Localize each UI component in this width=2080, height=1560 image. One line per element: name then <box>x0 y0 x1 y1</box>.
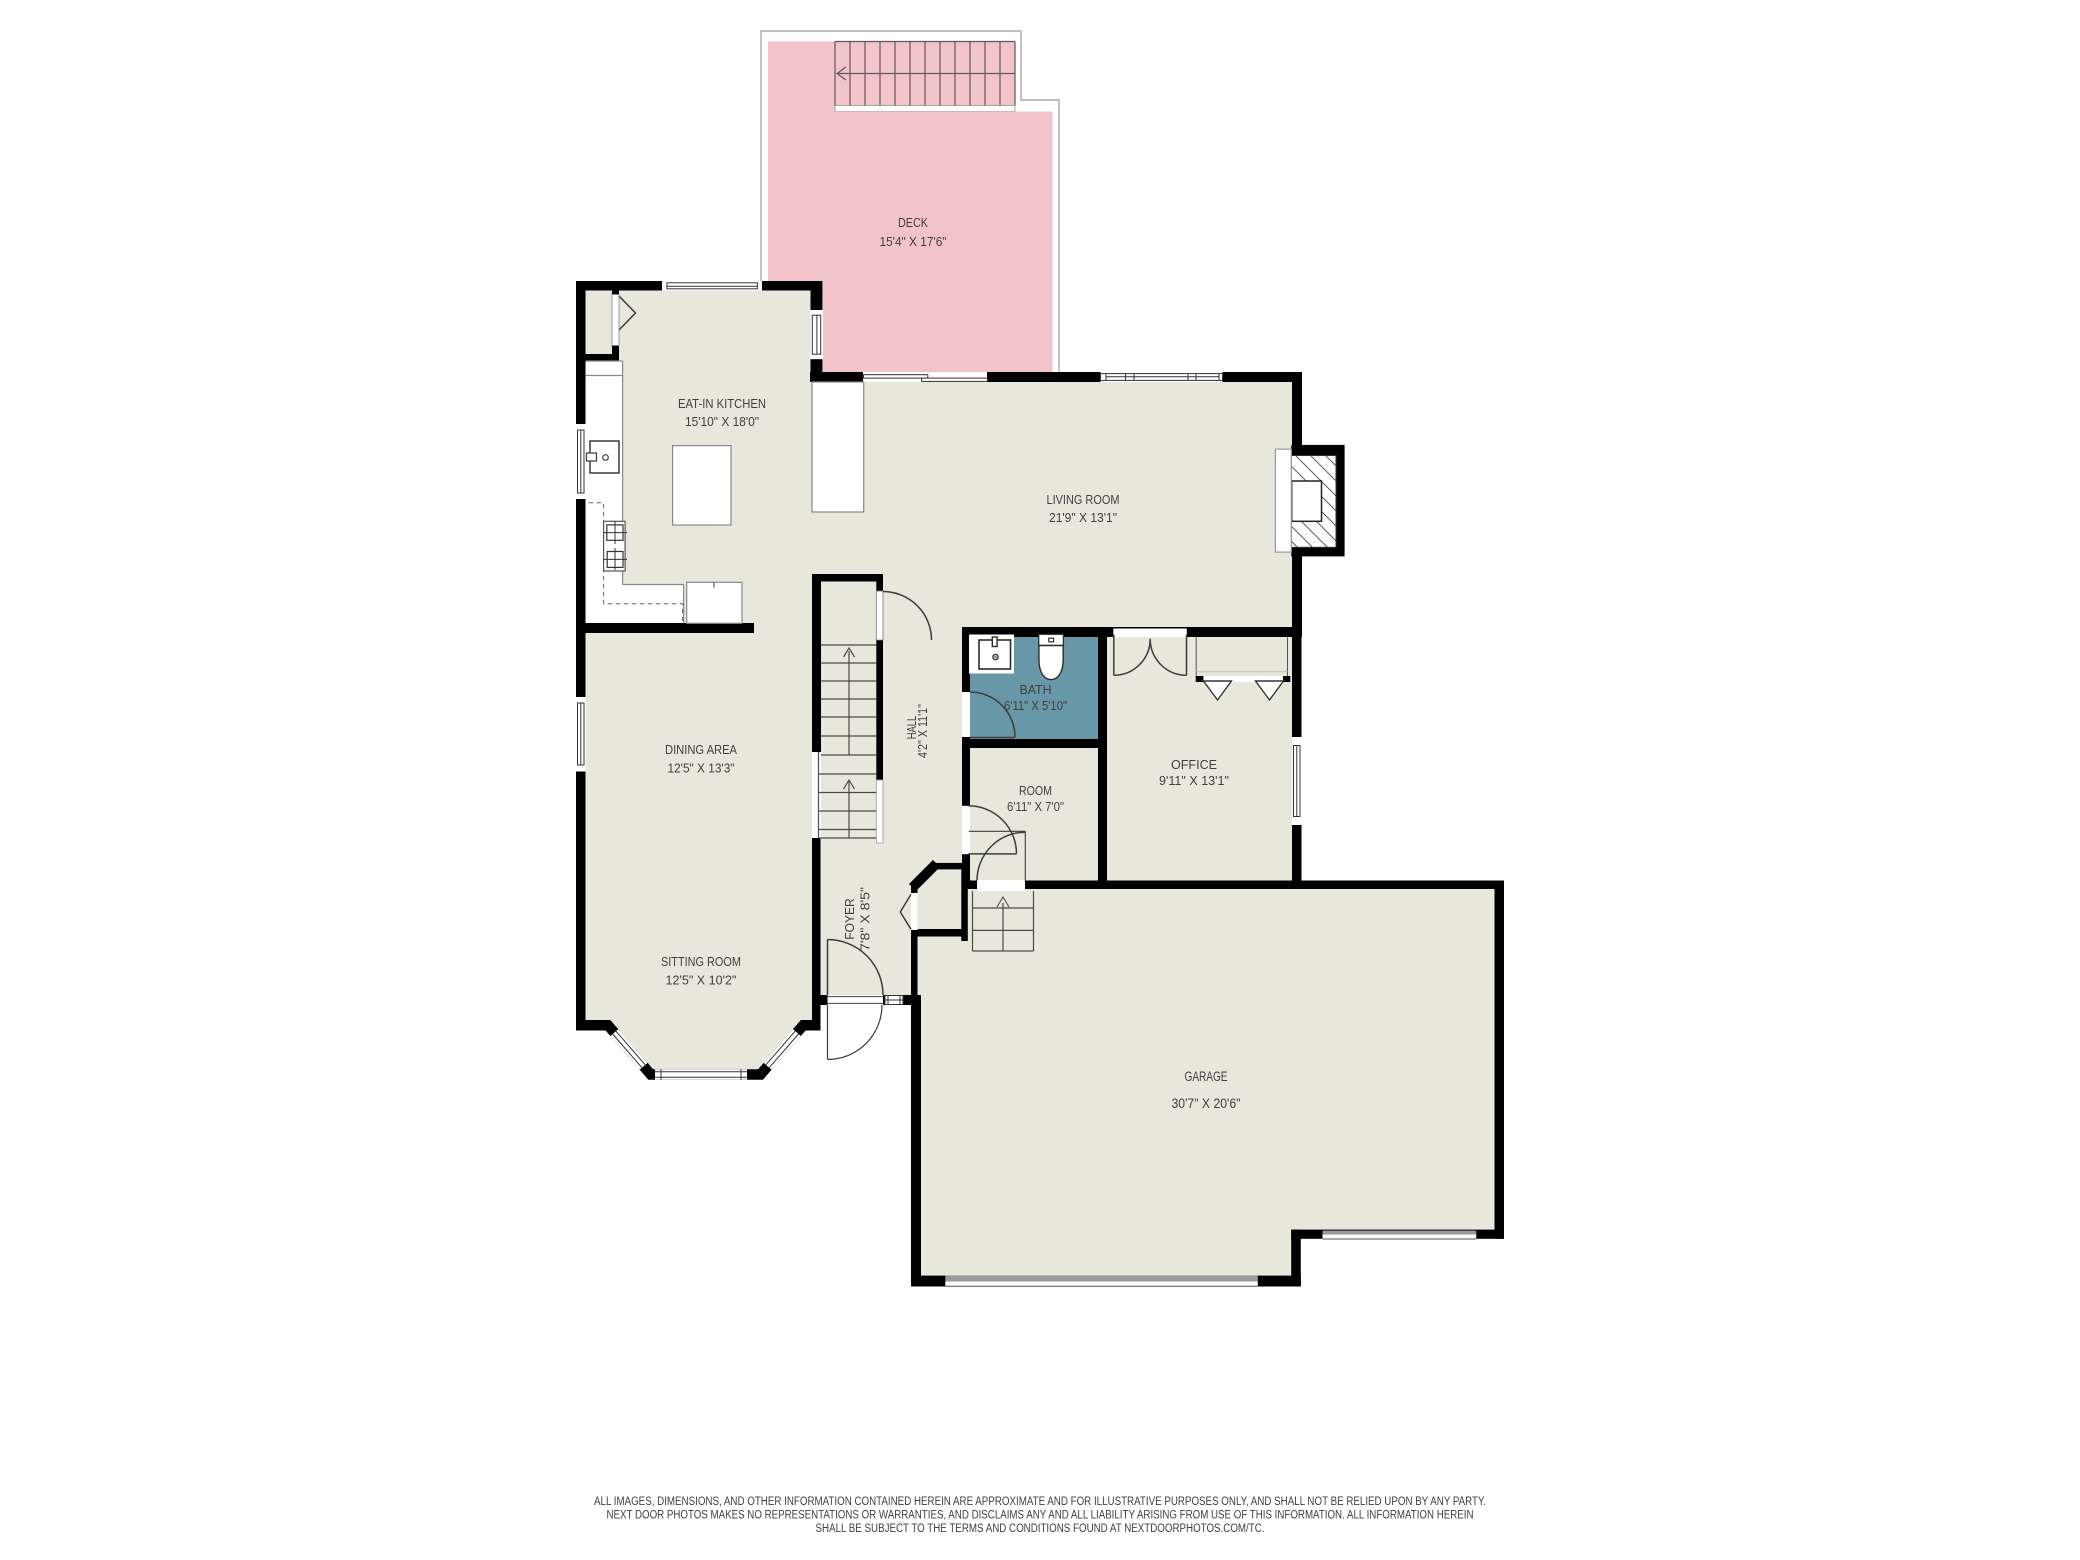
svg-text:ROOM: ROOM <box>1019 783 1052 798</box>
svg-text:4'2" X 11'1": 4'2" X 11'1" <box>915 704 930 758</box>
svg-text:12'5" X 13'3": 12'5" X 13'3" <box>668 761 735 776</box>
svg-text:6'11" X 5'10": 6'11" X 5'10" <box>1004 698 1067 713</box>
svg-text:30'7" X 20'6": 30'7" X 20'6" <box>1172 1096 1241 1111</box>
svg-text:7'8" X 8'5": 7'8" X 8'5" <box>858 887 873 951</box>
svg-text:ALL IMAGES, DIMENSIONS, AND OT: ALL IMAGES, DIMENSIONS, AND OTHER INFORM… <box>594 1496 1486 1508</box>
svg-text:21'9" X 13'1": 21'9" X 13'1" <box>1049 510 1117 525</box>
svg-text:BATH: BATH <box>1020 682 1052 697</box>
svg-text:SHALL BE SUBJECT TO THE TERMS: SHALL BE SUBJECT TO THE TERMS AND CONDIT… <box>816 1523 1265 1535</box>
svg-text:12'5" X 10'2": 12'5" X 10'2" <box>666 973 737 988</box>
svg-text:GARAGE: GARAGE <box>1185 1069 1228 1084</box>
svg-text:FOYER: FOYER <box>842 898 857 940</box>
svg-text:SITTING ROOM: SITTING ROOM <box>661 954 741 969</box>
svg-text:15'10" X 18'0": 15'10" X 18'0" <box>685 414 759 429</box>
svg-text:15'4" X 17'6": 15'4" X 17'6" <box>880 234 947 249</box>
svg-text:OFFICE: OFFICE <box>1171 757 1217 772</box>
svg-text:DECK: DECK <box>898 215 928 230</box>
svg-text:6'11" X 7'0": 6'11" X 7'0" <box>1007 799 1064 814</box>
svg-text:9'11" X 13'1": 9'11" X 13'1" <box>1159 773 1229 788</box>
svg-text:LIVING ROOM: LIVING ROOM <box>1047 492 1120 507</box>
svg-text:EAT-IN KITCHEN: EAT-IN KITCHEN <box>678 396 766 411</box>
svg-text:NEXT DOOR PHOTOS MAKES NO REPR: NEXT DOOR PHOTOS MAKES NO REPRESENTATION… <box>607 1510 1474 1522</box>
svg-text:DINING AREA: DINING AREA <box>665 742 737 757</box>
